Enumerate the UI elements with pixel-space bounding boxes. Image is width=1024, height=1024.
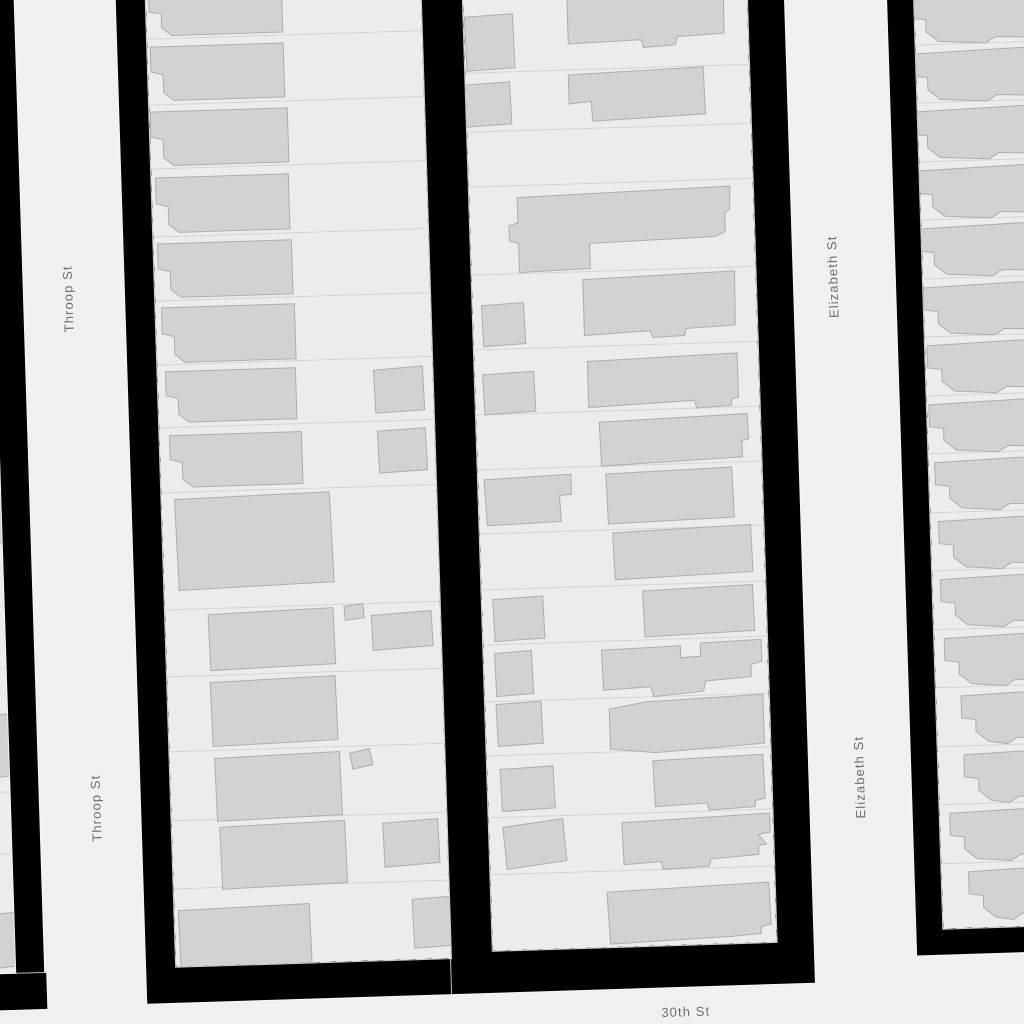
building-footprint [493,596,545,642]
map-rotated-layer: Throop StThroop StElizabeth StElizabeth … [0,0,1024,1024]
building-footprint [464,82,512,127]
building-footprint [481,303,525,347]
building-footprint [165,368,297,423]
building-footprint [155,174,290,233]
block-throop-elizabeth-east-parcels [461,0,777,951]
building-footprint [210,676,338,747]
block-west-sliver-border [0,973,47,1011]
building-footprint [215,752,343,822]
building-footprint [653,754,766,811]
building-footprint [157,240,293,298]
building-footprint [607,882,772,944]
building-footprint [503,818,568,869]
building-footprint [464,14,515,72]
building-footprint [150,43,285,101]
building-footprint [606,467,735,524]
building-footprint [178,904,312,967]
building-footprint [483,371,536,415]
building-footprint [161,304,296,363]
building-footprint [494,650,533,696]
block-throop-elizabeth-west-parcels [144,0,451,967]
building-footprint [344,604,364,621]
building-footprint [169,432,303,488]
building-footprint [377,428,427,474]
building-footprint [496,701,543,746]
building-footprint [150,108,289,166]
street-label-thirtieth-st: 30th St [661,1004,710,1021]
building-footprint [148,0,282,36]
building-footprint [383,818,440,867]
building-footprint [500,766,555,812]
street-label-elizabeth-st-lower: Elizabeth St [851,736,869,819]
building-footprint [412,896,451,948]
building-footprint [613,524,754,579]
building-footprint [587,353,739,412]
building-footprint [174,492,334,591]
building-footprint [642,584,754,636]
street-label-throop-st-upper: Throop St [60,265,77,332]
building-footprint [484,474,572,526]
street-label-throop-st-lower: Throop St [88,774,105,841]
building-footprint [208,608,336,671]
map-canvas[interactable]: Throop StThroop StElizabeth StElizabeth … [0,0,1024,1024]
building-footprint [373,366,424,414]
street-label-elizabeth-st-upper: Elizabeth St [824,235,842,318]
building-footprint [220,820,348,889]
building-footprint [371,611,433,651]
